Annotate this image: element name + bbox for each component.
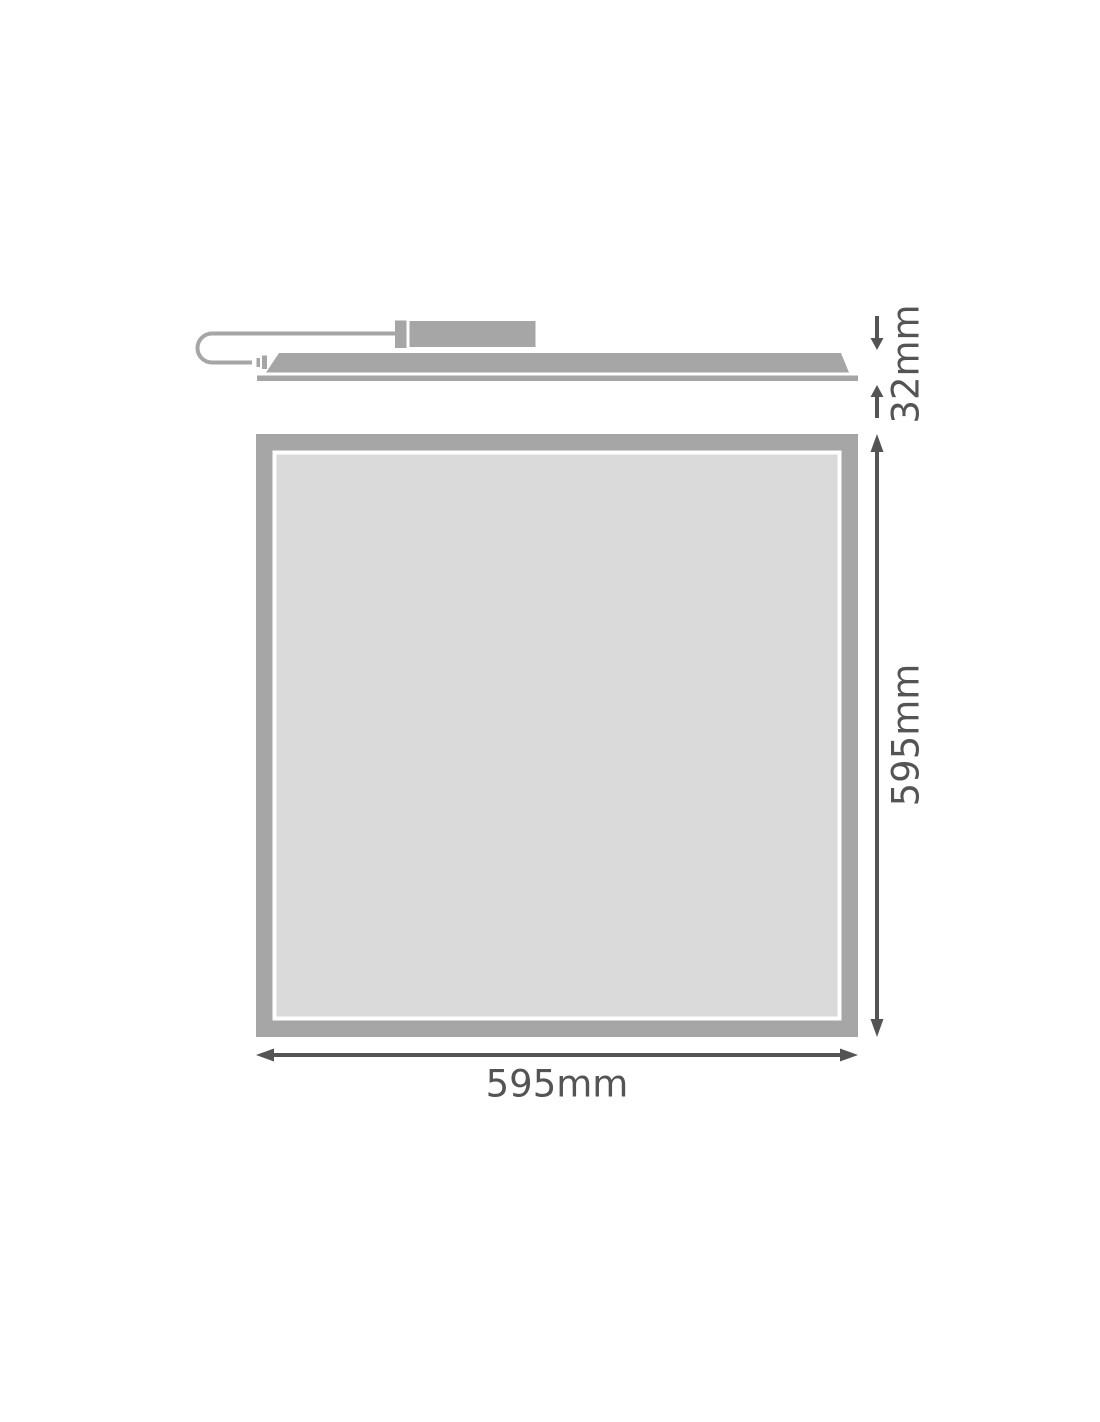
panel-body-profile [266,353,849,373]
cable-connector-pin [257,358,261,367]
side-view [198,321,859,382]
height-dim-label: 32mm [888,304,925,423]
height-dim-lower-shaft [875,397,879,418]
horizontal-left-arrow-icon [256,1049,274,1062]
horizontal-dimension [256,1049,858,1062]
horizontal-dimension-line [272,1053,842,1057]
vertical-top-arrow-icon [871,434,884,452]
height-dimension [871,316,884,418]
vertical-dimension [871,434,884,1037]
height-arrow-up-icon [871,385,884,397]
led-panel-dimension-diagram: 32mm 595mm 595mm [0,0,1100,1422]
vertical-dim-label: 595mm [888,664,925,807]
height-dim-upper-shaft [875,316,879,338]
front-view [256,434,858,1037]
horizontal-right-arrow-icon [840,1049,858,1062]
cable-connector [262,356,267,370]
horizontal-dim-label: 595mm [486,1066,629,1103]
diagram-shapes [0,0,1100,1422]
panel-frame-lip [257,376,858,382]
driver-connector-block [395,321,407,349]
vertical-dimension-line [875,450,879,1021]
height-arrow-down-icon [871,338,884,350]
vertical-bottom-arrow-icon [871,1019,884,1037]
driver-box [410,321,536,347]
panel-face [277,455,838,1017]
